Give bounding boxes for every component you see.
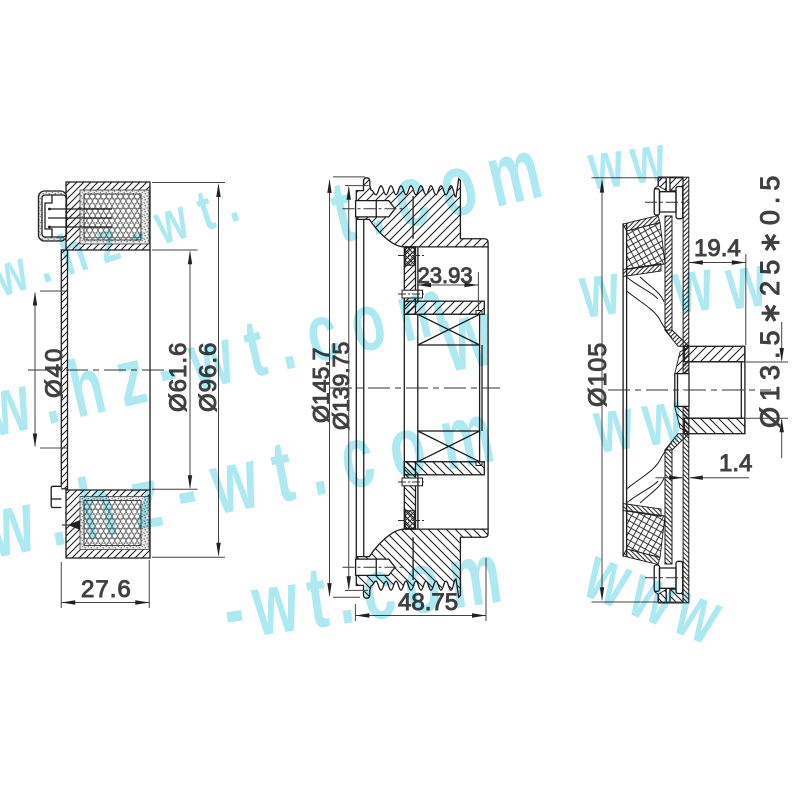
svg-text:27.6: 27.6 bbox=[81, 576, 132, 603]
svg-text:1.4: 1.4 bbox=[719, 450, 752, 477]
svg-text:ww: ww bbox=[588, 372, 697, 470]
svg-text:ww: ww bbox=[583, 119, 678, 204]
